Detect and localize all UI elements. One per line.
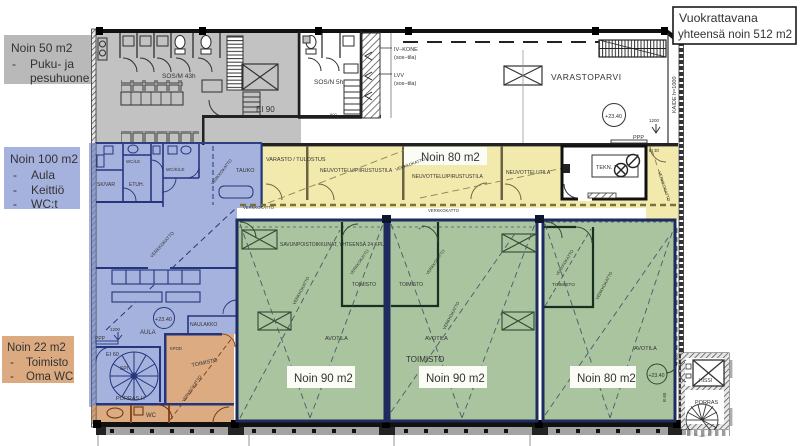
svg-text:KPOD: KPOD	[170, 346, 182, 351]
svg-text:Puku- ja: Puku- ja	[30, 57, 74, 71]
svg-text:TOIMISTO: TOIMISTO	[406, 355, 444, 364]
svg-text:-: -	[13, 197, 17, 211]
svg-text:KAIDE h=1000: KAIDE h=1000	[672, 76, 678, 113]
svg-text:Toimisto: Toimisto	[26, 357, 68, 369]
svg-text:TOIMISTO: TOIMISTO	[352, 282, 376, 288]
svg-text:(sos–tila): (sos–tila)	[394, 55, 416, 61]
svg-text:Keittiö: Keittiö	[31, 183, 65, 197]
svg-text:AULA: AULA	[140, 330, 156, 336]
svg-text:WC:t: WC:t	[31, 197, 58, 211]
svg-text:TOIMISTO: TOIMISTO	[552, 282, 575, 288]
svg-text:Aula: Aula	[31, 168, 55, 182]
svg-text:NEUVOTTELU/PIRUSTUSTILA: NEUVOTTELU/PIRUSTUSTILA	[412, 174, 484, 180]
svg-text:VARASTO / TULOSTUS: VARASTO / TULOSTUS	[266, 157, 326, 163]
svg-text:Noin 50 m2: Noin 50 m2	[11, 41, 73, 55]
svg-text:AVOTILA: AVOTILA	[325, 336, 348, 342]
svg-text:-: -	[13, 183, 17, 197]
svg-text:Oma WC: Oma WC	[26, 371, 73, 383]
svg-text:EI 30: EI 30	[649, 148, 659, 153]
svg-text:HISSI: HISSI	[699, 378, 712, 384]
svg-text:pesuhuone: pesuhuone	[30, 71, 90, 85]
svg-text:SAVUNPOISTOIKKUNAT, YHTEENSÄ: SAVUNPOISTOIKKUNAT, YHTEENSÄ 24 KPL	[280, 241, 384, 248]
svg-text:LVV: LVV	[394, 73, 404, 79]
svg-text:1200: 1200	[649, 118, 660, 123]
svg-text:-: -	[13, 168, 17, 182]
svg-text:EI 90: EI 90	[256, 105, 275, 114]
svg-text:SOS/M 43h: SOS/M 43h	[162, 73, 196, 80]
svg-text:Vuokrattavana: Vuokrattavana	[679, 11, 758, 25]
svg-text:Noin 80 m2: Noin 80 m2	[577, 373, 636, 385]
svg-text:+23.40: +23.40	[155, 317, 172, 323]
svg-text:Noin 100 m2: Noin 100 m2	[10, 152, 78, 166]
svg-text:900: 900	[330, 112, 337, 117]
svg-text:SK/VAR: SK/VAR	[97, 182, 115, 188]
svg-text:WC/LE: WC/LE	[126, 159, 140, 164]
svg-text:WC/K/LE: WC/K/LE	[166, 167, 185, 172]
svg-text:TAUKO: TAUKO	[236, 168, 255, 174]
svg-text:VERKKOKATTO: VERKKOKATTO	[428, 208, 460, 213]
svg-text:TOIMISTO: TOIMISTO	[399, 282, 423, 288]
svg-text:AVOTILA: AVOTILA	[425, 336, 448, 342]
svg-text:NAULAKKO: NAULAKKO	[190, 322, 217, 328]
svg-text:+23.40: +23.40	[605, 114, 622, 120]
svg-text:VARASTOPARVI: VARASTOPARVI	[551, 72, 622, 82]
svg-text:yhteensä noin 512 m2: yhteensä noin 512 m2	[678, 28, 792, 41]
svg-text:WC: WC	[146, 413, 157, 419]
svg-text:1200: 1200	[110, 327, 121, 332]
svg-text:-: -	[10, 371, 14, 383]
svg-text:ETUH.: ETUH.	[129, 182, 144, 188]
svg-text:AVOTILA: AVOTILA	[634, 346, 657, 352]
svg-text:Noin 90 m2: Noin 90 m2	[426, 373, 485, 385]
svg-text:-: -	[10, 357, 14, 369]
svg-text:(sos–tila): (sos–tila)	[394, 81, 416, 87]
svg-text:Noin 22 m2: Noin 22 m2	[7, 342, 66, 354]
svg-text:SOS/N 5h: SOS/N 5h	[314, 79, 344, 86]
svg-text:VERKKOKATTO: VERKKOKATTO	[243, 205, 275, 210]
svg-text:Noin 80 m2: Noin 80 m2	[421, 152, 480, 164]
svg-text:IV–KONE: IV–KONE	[394, 47, 418, 53]
svg-text:-: -	[12, 57, 16, 71]
svg-text:900: 900	[674, 353, 679, 360]
svg-text:B 60: B 60	[662, 392, 667, 402]
svg-text:PORRAS H: PORRAS H	[116, 396, 145, 402]
svg-text:+23.40: +23.40	[649, 373, 665, 379]
svg-text:EI 60: EI 60	[106, 352, 119, 358]
svg-text:Noin 90 m2: Noin 90 m2	[294, 373, 353, 385]
